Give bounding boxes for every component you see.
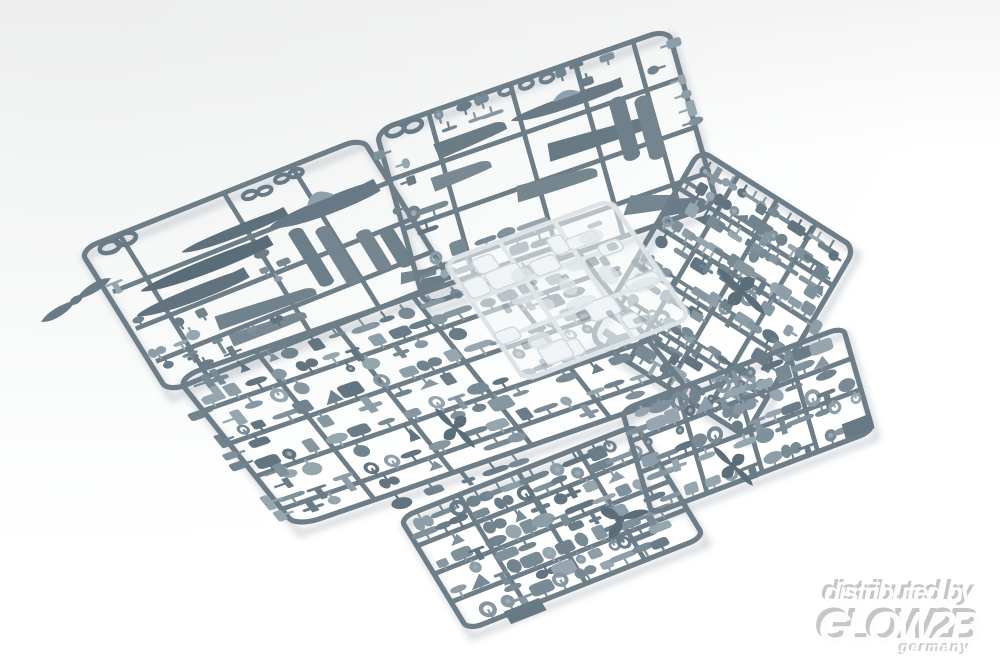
svg-text:germany: germany <box>899 640 971 657</box>
